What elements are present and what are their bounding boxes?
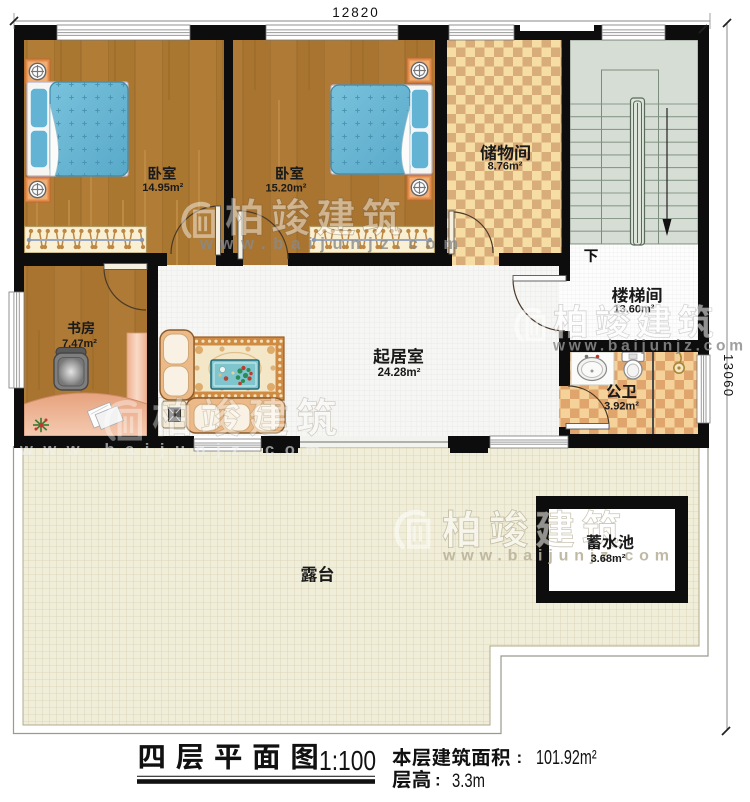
svg-text:15.20m²: 15.20m² [266,183,307,195]
svg-text:12820: 12820 [332,5,380,20]
svg-text:3.92m²: 3.92m² [604,401,639,413]
svg-text:8.76m²: 8.76m² [488,161,523,173]
svg-text::: : [517,748,523,767]
svg-text:101.92m²: 101.92m² [536,745,597,768]
svg-text:24.28m²: 24.28m² [378,367,421,379]
svg-text:1:100: 1:100 [319,746,376,776]
svg-text:3.68m²: 3.68m² [591,553,626,565]
svg-text:3.3m: 3.3m [452,770,485,791]
svg-text:14.95m²: 14.95m² [142,182,183,194]
svg-text:7.47m²: 7.47m² [62,338,97,350]
svg-text::: : [435,771,441,790]
svg-text:13060: 13060 [721,354,736,398]
